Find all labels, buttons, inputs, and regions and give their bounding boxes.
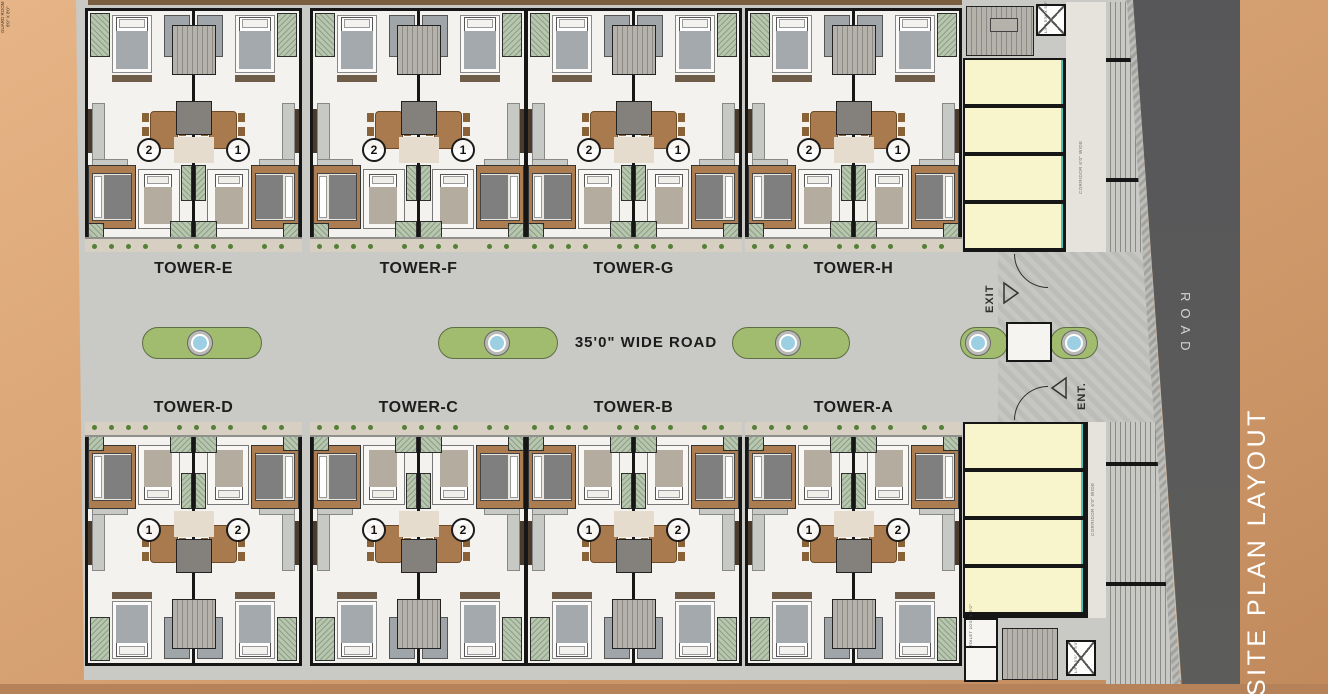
shrub — [617, 425, 622, 430]
shrub — [487, 425, 492, 430]
blanket — [875, 450, 903, 487]
wardrobe — [112, 75, 152, 82]
wardrobe — [112, 592, 152, 599]
blanket — [329, 455, 356, 499]
lift-bottom — [1066, 640, 1096, 676]
shrub — [317, 425, 322, 430]
shrub — [279, 425, 284, 430]
blanket — [544, 175, 571, 219]
dining-chair — [367, 127, 374, 136]
shrub — [651, 425, 656, 430]
fountain — [1061, 330, 1087, 356]
shrub — [194, 244, 199, 249]
tv-unit — [955, 521, 959, 565]
entrance-lobby — [399, 511, 439, 537]
dining-chair — [678, 127, 685, 136]
sofa — [532, 103, 545, 161]
shrub — [402, 244, 407, 249]
pillow — [218, 176, 240, 184]
tv-unit — [955, 109, 959, 153]
shrub — [532, 244, 537, 249]
tv-unit — [528, 521, 532, 565]
blanket — [239, 605, 271, 643]
blanket — [256, 175, 283, 219]
stall — [965, 520, 1083, 564]
stair-core — [172, 25, 216, 75]
shrub — [177, 244, 182, 249]
shrub — [719, 425, 724, 430]
blanket — [679, 605, 711, 643]
balcony — [750, 617, 770, 661]
pillow — [587, 490, 609, 498]
fountain-water — [191, 334, 209, 352]
stair-core — [397, 599, 441, 649]
balcony — [90, 617, 110, 661]
balcony — [502, 617, 522, 661]
entrance-lobby — [834, 511, 874, 537]
pillow — [372, 490, 394, 498]
shrub — [92, 425, 97, 430]
blanket — [215, 187, 243, 224]
balcony — [717, 617, 737, 661]
unit-number-badge: 2 — [797, 138, 821, 162]
pillow — [147, 176, 169, 184]
stair-core — [832, 599, 876, 649]
sofa — [507, 103, 520, 161]
wardrobe — [552, 75, 592, 82]
pillow — [510, 456, 518, 498]
blanket — [116, 605, 148, 643]
dining-chair — [463, 127, 470, 136]
tower-block-g — [525, 8, 742, 252]
blanket — [341, 31, 373, 69]
page-title: SITE PLAN LAYOUT — [1243, 388, 1283, 694]
balcony — [277, 13, 297, 57]
shrub — [334, 244, 339, 249]
shrub — [634, 425, 639, 430]
unit-number-badge: 1 — [577, 518, 601, 542]
shrub — [109, 244, 114, 249]
shrub — [453, 244, 458, 249]
tower-label-f: TOWER-F — [310, 260, 527, 278]
tower-label-g: TOWER-G — [525, 260, 742, 278]
stall — [965, 204, 1063, 248]
unit-number-badge: 1 — [226, 138, 250, 162]
pillow — [147, 490, 169, 498]
pillow — [94, 456, 102, 498]
lift-label-top: LIFT 5'5" X 5'0" — [1044, 7, 1048, 33]
blanket — [440, 187, 468, 224]
wardrobe — [460, 75, 500, 82]
blanket — [329, 175, 356, 219]
lift-shaft — [401, 101, 437, 135]
shrub — [702, 244, 707, 249]
stall-block-top — [963, 58, 1066, 252]
tower-label-b: TOWER-B — [525, 399, 742, 417]
blanket — [239, 31, 271, 69]
shrub — [922, 244, 927, 249]
stair-core — [172, 599, 216, 649]
exit-label: EXIT — [984, 277, 996, 313]
pillow — [902, 646, 928, 655]
blanket — [696, 175, 723, 219]
shrub — [566, 425, 571, 430]
balcony — [937, 617, 957, 661]
entrance-lobby — [174, 511, 214, 537]
tower-block-f — [310, 8, 527, 252]
tv-unit — [313, 521, 317, 565]
fountain-water — [1065, 334, 1083, 352]
pillow — [510, 176, 518, 218]
entrance-lobby — [614, 137, 654, 163]
shrub — [351, 244, 356, 249]
shrub — [436, 244, 441, 249]
pillow — [285, 456, 293, 498]
pillow — [344, 19, 370, 28]
pillow — [559, 19, 585, 28]
pillow — [372, 176, 394, 184]
shrub — [888, 244, 893, 249]
pillow — [682, 19, 708, 28]
blanket — [899, 31, 931, 69]
sofa — [942, 513, 955, 571]
blanket — [899, 605, 931, 643]
dining-chair — [802, 113, 809, 122]
blanket — [804, 187, 832, 224]
balcony — [90, 13, 110, 57]
shrub — [922, 425, 927, 430]
blanket — [144, 450, 172, 487]
walkway — [310, 422, 527, 437]
blanket — [481, 455, 508, 499]
shrub — [419, 425, 424, 430]
corridor-top — [1066, 2, 1106, 252]
shrub — [453, 425, 458, 430]
entry-arrow-icon — [1050, 376, 1068, 400]
sofa — [317, 513, 330, 571]
fountain-water — [779, 334, 797, 352]
pillow — [534, 176, 542, 218]
pillow — [119, 19, 145, 28]
shrub — [262, 244, 267, 249]
blanket — [116, 31, 148, 69]
pillow — [94, 176, 102, 218]
bathroom — [195, 165, 206, 201]
shrub — [532, 425, 537, 430]
unit-number-badge: 2 — [577, 138, 601, 162]
exit-arrow-icon — [1002, 281, 1020, 305]
shrub — [211, 244, 216, 249]
shrub — [228, 244, 233, 249]
shrub — [334, 425, 339, 430]
shrub — [317, 244, 322, 249]
entrance-lobby — [399, 137, 439, 163]
pillow — [902, 19, 928, 28]
bathroom — [855, 473, 866, 509]
pillow — [467, 19, 493, 28]
shrub — [368, 425, 373, 430]
shrub — [854, 425, 859, 430]
shrub — [871, 244, 876, 249]
pillow — [725, 456, 733, 498]
tower-label-h: TOWER-H — [745, 260, 962, 278]
shrub — [752, 425, 757, 430]
shrub — [504, 425, 509, 430]
pillow — [285, 176, 293, 218]
sofa — [752, 103, 765, 161]
pillow — [658, 490, 680, 498]
pillow — [587, 176, 609, 184]
toilet-label: TOILET 10'0" X 5'0" — [969, 621, 973, 647]
unit-number-badge: 2 — [226, 518, 250, 542]
lift-shaft — [401, 539, 437, 573]
shrub — [939, 425, 944, 430]
bathroom — [635, 165, 646, 201]
tower-block-b — [525, 422, 742, 666]
blanket — [556, 31, 588, 69]
central-road-label: 35'0" WIDE ROAD — [558, 334, 734, 351]
shrub — [719, 244, 724, 249]
wardrobe — [675, 75, 715, 82]
blanket — [764, 455, 791, 499]
wardrobe — [337, 592, 377, 599]
entrance-lobby — [614, 511, 654, 537]
tv-unit — [295, 521, 299, 565]
wardrobe — [552, 592, 592, 599]
blanket — [464, 605, 496, 643]
dining-chair — [238, 113, 245, 122]
pillow — [754, 456, 762, 498]
pillow — [945, 456, 953, 498]
dining-chair — [142, 113, 149, 122]
pillow — [218, 490, 240, 498]
balcony — [315, 13, 335, 57]
shrub — [368, 244, 373, 249]
unit-number-badge: 2 — [886, 518, 910, 542]
unit-number-badge: 2 — [137, 138, 161, 162]
lift-shaft — [176, 101, 212, 135]
stall — [965, 568, 1083, 612]
pillow — [242, 646, 268, 655]
stairs-bottom — [1002, 628, 1058, 680]
sofa — [317, 103, 330, 161]
fountain — [484, 330, 510, 356]
shrub — [871, 425, 876, 430]
bathroom — [621, 473, 632, 509]
stall — [965, 60, 1063, 104]
blanket — [916, 175, 943, 219]
shrub — [837, 425, 842, 430]
pillow — [534, 456, 542, 498]
shrub — [837, 244, 842, 249]
walkway — [525, 422, 742, 437]
pillow — [467, 646, 493, 655]
balcony — [717, 13, 737, 57]
unit-number-badge: 2 — [362, 138, 386, 162]
dining-chair — [582, 113, 589, 122]
shrub — [402, 425, 407, 430]
lift-shaft — [836, 539, 872, 573]
shrub — [211, 425, 216, 430]
shrub — [803, 244, 808, 249]
tower-block-d — [85, 422, 302, 666]
blanket — [481, 175, 508, 219]
bathroom — [841, 165, 852, 201]
guard-room-label: GUARD ROOM 8'0" X 8'0" — [0, 0, 34, 34]
dining-chair — [367, 113, 374, 122]
tower-block-h — [745, 8, 962, 252]
pillow — [658, 176, 680, 184]
pillow — [779, 646, 805, 655]
dining-chair — [898, 552, 905, 561]
tower-block-a — [745, 422, 962, 666]
lift-shaft — [176, 539, 212, 573]
stall — [965, 108, 1063, 152]
shrub — [549, 425, 554, 430]
balcony — [315, 617, 335, 661]
pillow — [319, 456, 327, 498]
blanket — [776, 605, 808, 643]
dining-chair — [463, 113, 470, 122]
shrub — [939, 244, 944, 249]
bathroom — [181, 165, 192, 201]
blanket — [144, 187, 172, 224]
dining-chair — [463, 552, 470, 561]
pillow — [945, 176, 953, 218]
dining-chair — [802, 552, 809, 561]
pillow — [443, 176, 465, 184]
pillow — [559, 646, 585, 655]
stall-block-bottom — [963, 422, 1088, 618]
sofa — [282, 103, 295, 161]
lift-shaft — [616, 101, 652, 135]
dining-chair — [238, 127, 245, 136]
side-road-label: ROAD — [1178, 292, 1193, 358]
guard-room — [1006, 322, 1052, 362]
dining-chair — [367, 552, 374, 561]
shrub — [786, 425, 791, 430]
tv-unit — [748, 521, 752, 565]
blanket — [256, 455, 283, 499]
sofa — [92, 513, 105, 571]
balcony — [530, 13, 550, 57]
entrance-lobby — [174, 137, 214, 163]
balcony — [502, 13, 522, 57]
bathroom — [621, 165, 632, 201]
tv-unit — [520, 109, 524, 153]
blanket — [776, 31, 808, 69]
shrub — [549, 244, 554, 249]
corridor-label-top: CORRIDOR 6'0" WIDE — [1079, 116, 1084, 194]
blanket — [804, 450, 832, 487]
shrub — [888, 425, 893, 430]
shrub — [92, 244, 97, 249]
blanket — [696, 455, 723, 499]
bathroom — [406, 165, 417, 201]
bottom-ground-strip — [0, 684, 1328, 694]
tower-label-c: TOWER-C — [310, 399, 527, 417]
shrub — [668, 425, 673, 430]
shrub — [617, 244, 622, 249]
stall — [965, 472, 1083, 516]
pillow — [779, 19, 805, 28]
pillow — [443, 490, 465, 498]
fountain — [187, 330, 213, 356]
shrub — [419, 244, 424, 249]
wardrobe — [772, 592, 812, 599]
tv-unit — [528, 109, 532, 153]
shrub — [803, 425, 808, 430]
shrub — [702, 425, 707, 430]
shrub — [583, 425, 588, 430]
tower-label-a: TOWER-A — [745, 399, 962, 417]
wardrobe — [235, 592, 275, 599]
walkway — [745, 237, 962, 252]
dining-chair — [142, 552, 149, 561]
shrub — [262, 425, 267, 430]
shrub — [436, 425, 441, 430]
blanket — [679, 31, 711, 69]
shrub — [504, 244, 509, 249]
wardrobe — [895, 75, 935, 82]
compound-wall-top — [88, 0, 962, 5]
blanket — [584, 450, 612, 487]
blanket — [464, 31, 496, 69]
tv-unit — [88, 521, 92, 565]
tower-label-e: TOWER-E — [85, 260, 302, 278]
tv-unit — [520, 521, 524, 565]
wardrobe — [895, 592, 935, 599]
tv-unit — [735, 521, 739, 565]
tower-label-d: TOWER-D — [85, 399, 302, 417]
shrub — [769, 244, 774, 249]
entry-label: ENT. — [1076, 374, 1088, 410]
tv-unit — [295, 109, 299, 153]
blanket — [341, 605, 373, 643]
stair-core — [397, 25, 441, 75]
wardrobe — [337, 75, 377, 82]
shrub — [194, 425, 199, 430]
walkway — [745, 422, 962, 437]
walkway — [310, 237, 527, 252]
lift-shaft — [836, 101, 872, 135]
shrub — [566, 244, 571, 249]
stall — [965, 424, 1083, 468]
fountain-water — [969, 334, 987, 352]
blanket — [556, 605, 588, 643]
blanket — [655, 450, 683, 487]
wardrobe — [675, 592, 715, 599]
blanket — [584, 187, 612, 224]
dining-chair — [238, 552, 245, 561]
tv-unit — [88, 109, 92, 153]
unit-number-badge: 1 — [137, 518, 161, 542]
pillow — [807, 490, 829, 498]
bathroom — [195, 473, 206, 509]
wardrobe — [460, 592, 500, 599]
lift-top — [1036, 4, 1066, 36]
stall — [965, 156, 1063, 200]
stair-core — [612, 599, 656, 649]
bathroom — [420, 165, 431, 201]
blanket — [544, 455, 571, 499]
shrub — [752, 244, 757, 249]
pillow — [878, 176, 900, 184]
unit-number-badge: 1 — [362, 518, 386, 542]
shrub — [126, 425, 131, 430]
sofa — [722, 513, 735, 571]
dining-chair — [898, 113, 905, 122]
